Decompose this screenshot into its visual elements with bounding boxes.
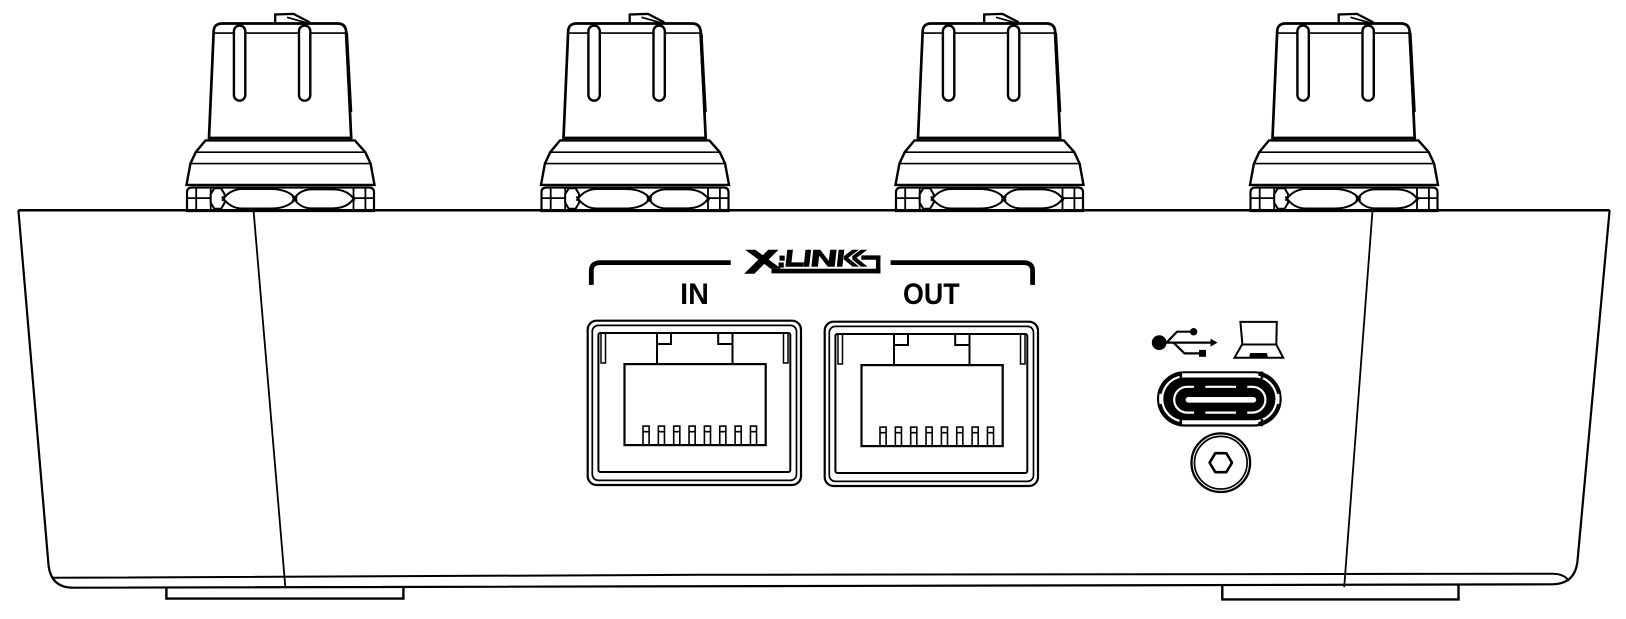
svg-text:OUT: OUT [903,278,960,311]
svg-text:IN: IN [680,278,709,311]
